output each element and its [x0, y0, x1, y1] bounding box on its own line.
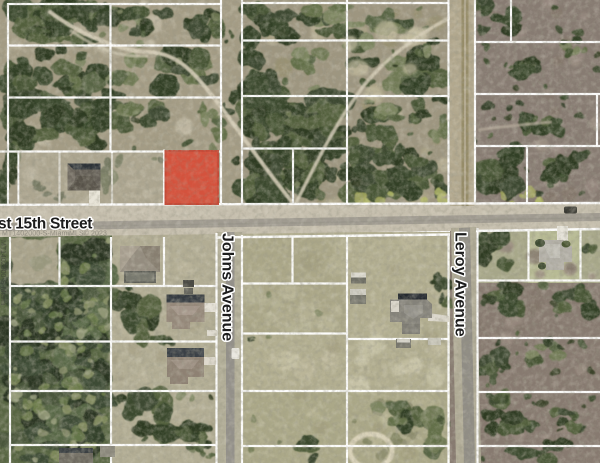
svg-text:Leroy Avenue: Leroy Avenue [452, 232, 469, 337]
svg-text:Johns Avenue: Johns Avenue [219, 233, 236, 341]
svg-text:MT1402000-S-Miami: MT1402000-S-Miami [0, 240, 6, 306]
svg-text:MT1402000-S-MiamiMLS© 2023: MT1402000-S-MiamiMLS© 2023 [2, 230, 107, 238]
